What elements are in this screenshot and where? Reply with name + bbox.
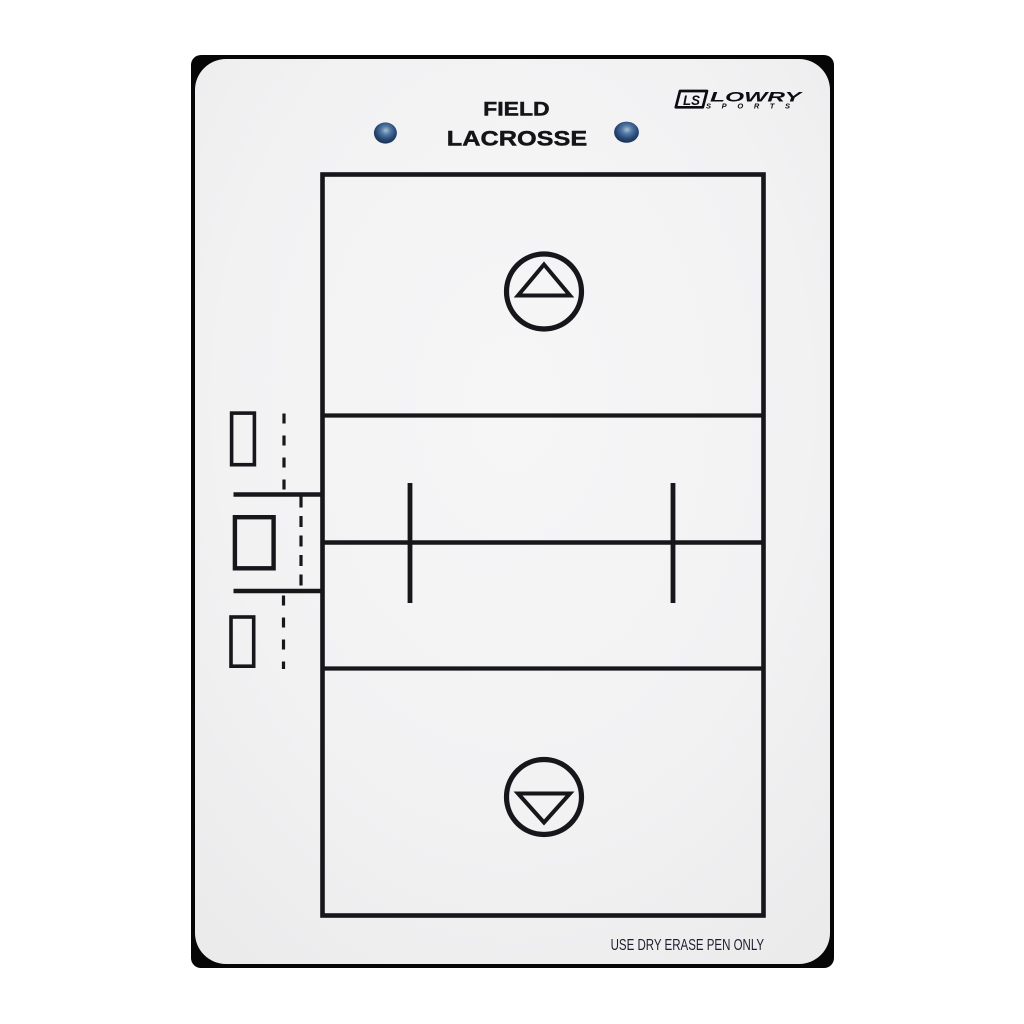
svg-text:LACROSSE: LACROSSE [447, 127, 587, 151]
svg-text:USE DRY ERASE PEN ONLY: USE DRY ERASE PEN ONLY [611, 937, 765, 954]
svg-text:LS: LS [683, 93, 700, 108]
svg-text:FIELD: FIELD [483, 99, 550, 120]
